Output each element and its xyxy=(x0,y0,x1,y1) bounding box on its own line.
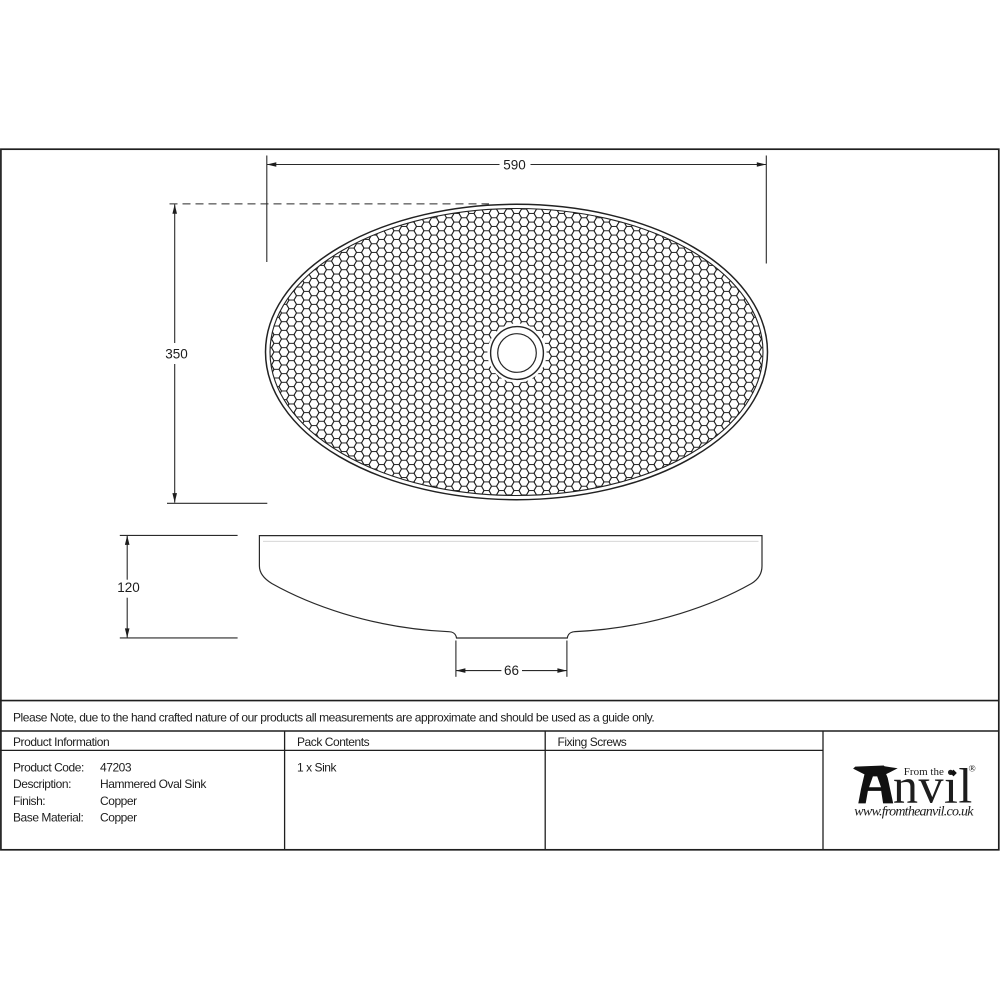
svg-text:120: 120 xyxy=(117,580,140,595)
svg-text:66: 66 xyxy=(504,663,519,678)
svg-text:1 x Sink: 1 x Sink xyxy=(297,761,338,775)
svg-text:Finish:: Finish: xyxy=(13,794,45,808)
svg-text:Copper: Copper xyxy=(100,794,137,808)
svg-text:350: 350 xyxy=(165,346,188,361)
svg-text:590: 590 xyxy=(503,157,526,172)
svg-text:Please Note, due to the hand c: Please Note, due to the hand crafted nat… xyxy=(13,710,654,724)
svg-text:Product Information: Product Information xyxy=(13,735,109,749)
svg-text:47203: 47203 xyxy=(100,761,132,775)
svg-text:Copper: Copper xyxy=(100,810,137,824)
svg-text:Description:: Description: xyxy=(13,777,71,791)
svg-text:From the: From the xyxy=(904,766,944,778)
svg-text:Fixing Screws: Fixing Screws xyxy=(558,735,627,749)
svg-text:www.fromtheanvil.co.uk: www.fromtheanvil.co.uk xyxy=(854,804,974,819)
svg-text:Pack Contents: Pack Contents xyxy=(297,735,370,749)
svg-text:Hammered Oval Sink: Hammered Oval Sink xyxy=(100,777,207,791)
svg-text:®: ® xyxy=(969,764,976,775)
svg-text:Product Code:: Product Code: xyxy=(13,761,84,775)
svg-text:Base Material:: Base Material: xyxy=(13,810,84,824)
